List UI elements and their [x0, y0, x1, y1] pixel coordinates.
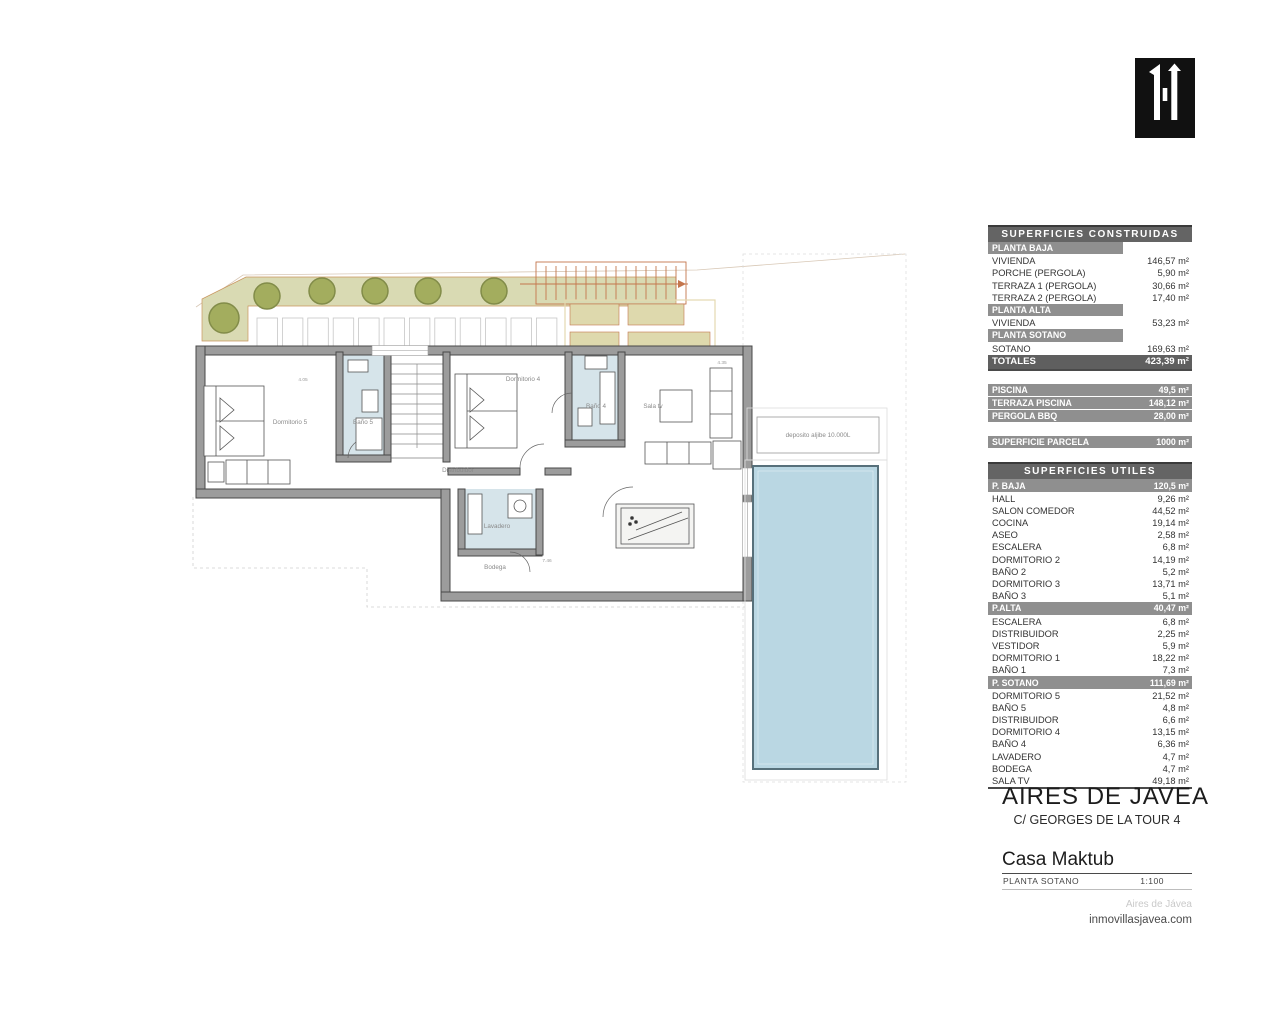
- watermark-text: Aires de Jávea: [1002, 899, 1192, 910]
- row-value: 13,71 m²: [1152, 579, 1192, 589]
- row-value: 21,52 m²: [1152, 691, 1192, 701]
- table-row: HALL9,26 m²: [988, 493, 1192, 505]
- table-row: PLANTA ALTA: [988, 304, 1192, 316]
- row-label: DORMITORIO 4: [988, 727, 1060, 737]
- row-value: 5,2 m²: [1163, 567, 1192, 577]
- row-value: 4,8 m²: [1163, 703, 1192, 713]
- row-label: HALL: [988, 494, 1015, 504]
- table-row: BODEGA4,7 m²: [988, 763, 1192, 775]
- row-label: DISTRIBUIDOR: [988, 715, 1059, 725]
- bed-dormitorio4: [455, 374, 517, 448]
- row-label: ESCALERA: [988, 617, 1042, 627]
- row-value: 120,5 m²: [1154, 481, 1192, 491]
- house-name: Casa Maktub: [1002, 849, 1192, 874]
- room-label-bodega: Bodega: [484, 564, 506, 571]
- row-value: 423,39 m²: [1145, 356, 1192, 367]
- row-value: 1000 m²: [1156, 437, 1192, 447]
- row-value: 169,63 m²: [1147, 344, 1192, 354]
- row-value: 5,1 m²: [1163, 591, 1192, 601]
- row-value: 18,22 m²: [1152, 653, 1192, 663]
- dim-label: 4.35: [717, 360, 727, 366]
- row-value: 14,19 m²: [1152, 555, 1192, 565]
- project-address: C/ GEORGES DE LA TOUR 4: [1002, 813, 1192, 827]
- row-value: 49,5 m²: [1159, 385, 1192, 395]
- table-row: P. SOTANO111,69 m²: [988, 676, 1192, 688]
- table-row: TERRAZA 1 (PERGOLA)30,66 m²: [988, 280, 1192, 292]
- staircase: [391, 354, 443, 458]
- table-row: BAÑO 54,8 m²: [988, 702, 1192, 714]
- table-row: DISTRIBUIDOR6,6 m²: [988, 714, 1192, 726]
- row-label: DORMITORIO 5: [988, 691, 1060, 701]
- room-label-lavadero: Lavadero: [484, 523, 511, 530]
- table-row: PORCHE (PERGOLA)5,90 m²: [988, 267, 1192, 279]
- superficies-construidas-table: SUPERFICIES CONSTRUIDAS PLANTA BAJAVIVIE…: [988, 225, 1192, 371]
- table-row: DORMITORIO 313,71 m²: [988, 578, 1192, 590]
- floor-plan: deposito aljibe 10.000L Dormitorio 5 Bañ…: [175, 245, 915, 790]
- row-value: 4,7 m²: [1163, 752, 1192, 762]
- table-row: DORMITORIO 214,19 m²: [988, 554, 1192, 566]
- table-row: ASEO2,58 m²: [988, 529, 1192, 541]
- row-value: 19,14 m²: [1152, 518, 1192, 528]
- row-value: 146,57 m²: [1147, 256, 1192, 266]
- table-row: VIVIENDA53,23 m²: [988, 317, 1192, 329]
- row-label: BAÑO 4: [988, 739, 1026, 749]
- row-label: VIVIENDA: [988, 256, 1035, 266]
- row-label: TERRAZA 1 (PERGOLA): [988, 281, 1096, 291]
- row-value: 28,00 m²: [1154, 411, 1192, 421]
- table-row: DORMITORIO 521,52 m²: [988, 690, 1192, 702]
- row-label: BAÑO 5: [988, 703, 1026, 713]
- row-label: PLANTA ALTA: [988, 304, 1123, 316]
- table-title: SUPERFICIES CONSTRUIDAS: [988, 225, 1192, 242]
- table-row: TERRAZA PISCINA148,12 m²: [988, 397, 1192, 409]
- room-label-dormitorio5: Dormitorio 5: [273, 419, 308, 426]
- row-label: PISCINA: [988, 385, 1028, 395]
- row-value: 9,26 m²: [1157, 494, 1192, 504]
- row-label: P.ALTA: [988, 603, 1021, 613]
- row-label: P. SOTANO: [988, 678, 1039, 688]
- row-value: 44,52 m²: [1152, 506, 1192, 516]
- areas-panel: SUPERFICIES CONSTRUIDAS PLANTA BAJAVIVIE…: [988, 225, 1192, 789]
- row-label: PERGOLA BBQ: [988, 411, 1057, 421]
- row-value: 4,7 m²: [1163, 764, 1192, 774]
- row-label: BODEGA: [988, 764, 1032, 774]
- sofa-dormitorio5: [208, 460, 290, 484]
- row-value: 2,25 m²: [1157, 629, 1192, 639]
- table-row: VIVIENDA146,57 m²: [988, 255, 1192, 267]
- company-logo: [1135, 58, 1195, 138]
- row-label: PORCHE (PERGOLA): [988, 268, 1086, 278]
- row-label: PLANTA SOTANO: [988, 329, 1123, 341]
- row-value: 17,40 m²: [1152, 293, 1192, 303]
- pergola-roof-panels: [565, 300, 715, 350]
- plan-name-row: PLANTA SOTANO 1:100: [1002, 874, 1192, 890]
- plan-name: PLANTA SOTANO: [1003, 876, 1079, 886]
- table-row: DORMITORIO 413,15 m²: [988, 726, 1192, 738]
- sala-tv-furniture: [645, 368, 741, 469]
- table-row: SUPERFICIE PARCELA1000 m²: [988, 436, 1192, 448]
- table-row: PLANTA BAJA: [988, 242, 1192, 254]
- row-label: LAVADERO: [988, 752, 1041, 762]
- row-value: 30,66 m²: [1152, 281, 1192, 291]
- table-row: PISCINA49,5 m²: [988, 384, 1192, 396]
- row-label: DORMITORIO 2: [988, 555, 1060, 565]
- dim-label: 4.05: [298, 377, 308, 383]
- row-label: DORMITORIO 1: [988, 653, 1060, 663]
- row-value: 111,69 m²: [1150, 678, 1192, 688]
- dim-label: 7.46: [542, 558, 552, 564]
- row-label: SUPERFICIE PARCELA: [988, 437, 1089, 447]
- row-value: 6,8 m²: [1163, 617, 1192, 627]
- room-label-bano4: Baño 4: [586, 403, 606, 410]
- row-label: SOTANO: [988, 344, 1031, 354]
- row-label: PLANTA BAJA: [988, 242, 1123, 254]
- table-row: P.ALTA40,47 m²: [988, 602, 1192, 614]
- table-row: PLANTA SOTANO: [988, 329, 1192, 341]
- project-title: AIRES DE JAVEA: [1002, 783, 1192, 811]
- table-row: BAÑO 25,2 m²: [988, 566, 1192, 578]
- table-row: DORMITORIO 118,22 m²: [988, 652, 1192, 664]
- deposito-aljibe: deposito aljibe 10.000L: [747, 408, 887, 460]
- row-label: BAÑO 2: [988, 567, 1026, 577]
- website-link[interactable]: inmovillasjavea.com: [1002, 914, 1192, 926]
- table-row: VESTIDOR5,9 m²: [988, 640, 1192, 652]
- table-row: COCINA19,14 m²: [988, 517, 1192, 529]
- row-value: 40,47 m²: [1154, 603, 1192, 613]
- furniture: [204, 356, 741, 548]
- table-row: PERGOLA BBQ28,00 m²: [988, 410, 1192, 422]
- table-row: TOTALES423,39 m²: [988, 355, 1192, 369]
- room-label-sala-tv: Sala tv: [643, 403, 663, 410]
- deposito-label: deposito aljibe 10.000L: [786, 432, 851, 439]
- bed-dormitorio5: [204, 386, 264, 456]
- table-row: BAÑO 35,1 m²: [988, 590, 1192, 602]
- row-value: 6,36 m²: [1157, 739, 1192, 749]
- row-label: DORMITORIO 3: [988, 579, 1060, 589]
- row-value: 53,23 m²: [1152, 318, 1192, 328]
- row-label: TERRAZA PISCINA: [988, 398, 1072, 408]
- row-label: ASEO: [988, 530, 1018, 540]
- table-row: SALON COMEDOR44,52 m²: [988, 505, 1192, 517]
- room-label-distribuidor: Distribuidor: [442, 467, 474, 474]
- superficies-utiles-table: SUPERFICIES UTILES P. BAJA120,5 m²HALL9,…: [988, 462, 1192, 789]
- plan-scale: 1:100: [1140, 876, 1164, 886]
- room-label-bano5: Baño 5: [353, 419, 373, 426]
- row-label: TERRAZA 2 (PERGOLA): [988, 293, 1096, 303]
- row-label: BAÑO 1: [988, 665, 1026, 675]
- row-value: 13,15 m²: [1152, 727, 1192, 737]
- row-value: 148,12 m²: [1149, 398, 1192, 408]
- row-label: COCINA: [988, 518, 1028, 528]
- table-row: BAÑO 46,36 m²: [988, 738, 1192, 750]
- swimming-pool: [745, 460, 887, 780]
- table-row: ESCALERA6,8 m²: [988, 616, 1192, 628]
- row-label: BAÑO 3: [988, 591, 1026, 601]
- table-row: BAÑO 17,3 m²: [988, 664, 1192, 676]
- plan-sheet: { "logo": {"name": "inmovillas-monogram-…: [0, 0, 1280, 1024]
- row-value: 5,9 m²: [1163, 641, 1192, 651]
- parcela-table: SUPERFICIE PARCELA1000 m²: [988, 436, 1192, 448]
- row-label: DISTRIBUIDOR: [988, 629, 1059, 639]
- table-row: DISTRIBUIDOR2,25 m²: [988, 628, 1192, 640]
- row-value: 2,58 m²: [1157, 530, 1192, 540]
- room-label-dormitorio4: Dormitorio 4: [506, 376, 541, 383]
- billiard-table: [616, 504, 694, 548]
- row-label: TOTALES: [988, 356, 1036, 367]
- table-row: TERRAZA 2 (PERGOLA)17,40 m²: [988, 292, 1192, 304]
- row-label: SALON COMEDOR: [988, 506, 1075, 516]
- table-row: P. BAJA120,5 m²: [988, 479, 1192, 491]
- row-value: 7,3 m²: [1163, 665, 1192, 675]
- table-title: SUPERFICIES UTILES: [988, 462, 1192, 479]
- row-label: ESCALERA: [988, 542, 1042, 552]
- row-label: VIVIENDA: [988, 318, 1035, 328]
- row-value: 6,6 m²: [1163, 715, 1192, 725]
- table-row: SOTANO169,63 m²: [988, 343, 1192, 355]
- row-value: 5,90 m²: [1157, 268, 1192, 278]
- row-value: 6,8 m²: [1163, 542, 1192, 552]
- row-label: VESTIDOR: [988, 641, 1040, 651]
- table-row: ESCALERA6,8 m²: [988, 541, 1192, 553]
- table-row: LAVADERO4,7 m²: [988, 751, 1192, 763]
- exterior-areas-table: PISCINA49,5 m²TERRAZA PISCINA148,12 m²PE…: [988, 384, 1192, 423]
- title-block: AIRES DE JAVEA C/ GEORGES DE LA TOUR 4 C…: [1002, 783, 1192, 926]
- row-label: P. BAJA: [988, 481, 1026, 491]
